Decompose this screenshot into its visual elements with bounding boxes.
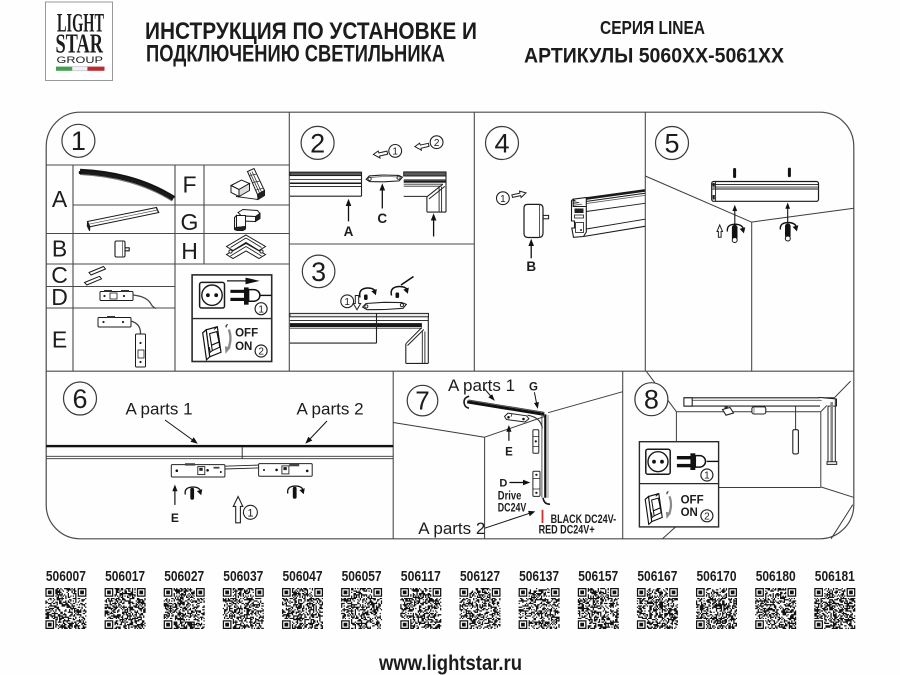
svg-text:506180: 506180 <box>756 568 796 585</box>
svg-text:506037: 506037 <box>223 568 263 585</box>
svg-text:A: A <box>344 224 354 239</box>
svg-text:G: G <box>529 382 538 394</box>
svg-text:506157: 506157 <box>578 568 618 585</box>
svg-text:E: E <box>52 327 67 353</box>
svg-text:E: E <box>171 511 179 525</box>
svg-text:8: 8 <box>644 385 659 415</box>
svg-text:STAR: STAR <box>56 29 104 59</box>
svg-text:ПОДКЛЮЧЕНИЮ СВЕТИЛЬНИКА: ПОДКЛЮЧЕНИЮ СВЕТИЛЬНИКА <box>146 41 445 68</box>
svg-text:506117: 506117 <box>401 568 441 585</box>
svg-text:2: 2 <box>434 138 440 149</box>
svg-text:D: D <box>51 284 68 310</box>
svg-text:OFF: OFF <box>235 328 258 340</box>
svg-text:2: 2 <box>310 128 325 158</box>
svg-text:ON: ON <box>235 341 252 353</box>
svg-text:Drive: Drive <box>498 491 522 503</box>
svg-text:2: 2 <box>704 512 710 523</box>
svg-text:RED DC24V+: RED DC24V+ <box>539 525 595 537</box>
svg-text:1: 1 <box>258 304 264 315</box>
svg-text:1: 1 <box>500 194 506 205</box>
svg-text:DC24V: DC24V <box>498 503 527 515</box>
svg-text:A parts 2: A parts 2 <box>296 400 363 419</box>
svg-text:B: B <box>526 259 536 274</box>
svg-text:D: D <box>499 478 507 490</box>
svg-text:B: B <box>52 236 67 262</box>
svg-text:www.lightstar.ru: www.lightstar.ru <box>378 651 522 675</box>
svg-text:506017: 506017 <box>105 568 145 585</box>
svg-text:506047: 506047 <box>283 568 323 585</box>
svg-text:7: 7 <box>415 386 429 416</box>
svg-text:3: 3 <box>311 257 326 287</box>
svg-text:506181: 506181 <box>815 568 855 585</box>
svg-text:6: 6 <box>72 384 87 414</box>
svg-text:506027: 506027 <box>164 568 204 585</box>
svg-text:C: C <box>377 211 387 226</box>
svg-text:1: 1 <box>71 126 86 156</box>
svg-text:506170: 506170 <box>697 568 737 585</box>
svg-text:E: E <box>505 447 513 459</box>
svg-text:A parts 1: A parts 1 <box>125 400 192 419</box>
svg-text:A parts 2: A parts 2 <box>418 519 485 538</box>
svg-text:G: G <box>181 209 199 235</box>
svg-text:506137: 506137 <box>519 568 559 585</box>
svg-text:ON: ON <box>681 507 698 519</box>
svg-text:506007: 506007 <box>46 568 86 585</box>
svg-text:F: F <box>182 172 196 198</box>
svg-text:H: H <box>181 238 198 264</box>
svg-text:OFF: OFF <box>681 495 704 507</box>
svg-text:506127: 506127 <box>460 568 500 585</box>
svg-text:1: 1 <box>247 507 253 519</box>
svg-text:АРТИКУЛЫ 5060XX-5061XX: АРТИКУЛЫ 5060XX-5061XX <box>524 45 784 68</box>
svg-text:506167: 506167 <box>637 568 677 585</box>
svg-text:A parts 1: A parts 1 <box>448 376 515 395</box>
svg-text:GROUP: GROUP <box>57 55 104 65</box>
svg-text:1: 1 <box>704 471 710 482</box>
svg-text:2: 2 <box>258 347 264 358</box>
svg-text:506057: 506057 <box>342 568 382 585</box>
svg-text:1: 1 <box>344 297 350 308</box>
svg-text:1: 1 <box>392 147 398 158</box>
svg-text:A: A <box>52 186 68 212</box>
svg-text:4: 4 <box>494 128 509 158</box>
svg-text:СЕРИЯ LINEA: СЕРИЯ LINEA <box>600 18 705 38</box>
svg-text:5: 5 <box>664 128 679 158</box>
